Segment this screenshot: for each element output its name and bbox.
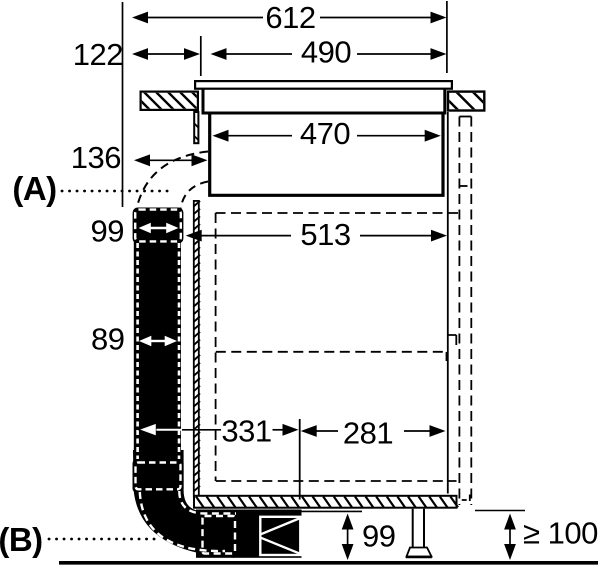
svg-text:470: 470: [300, 116, 350, 151]
svg-text:136: 136: [71, 140, 121, 175]
svg-text:331: 331: [221, 414, 271, 449]
svg-text:(B): (B): [0, 521, 43, 558]
svg-text:89: 89: [91, 322, 124, 357]
svg-text:513: 513: [300, 217, 350, 252]
svg-text:281: 281: [343, 416, 393, 451]
svg-text:490: 490: [301, 35, 351, 70]
svg-text:122: 122: [73, 37, 123, 72]
svg-text:≥ 100: ≥ 100: [523, 516, 598, 551]
svg-text:(A): (A): [12, 170, 56, 207]
svg-text:99: 99: [91, 214, 124, 249]
svg-text:99: 99: [362, 519, 395, 554]
svg-text:612: 612: [265, 0, 315, 35]
